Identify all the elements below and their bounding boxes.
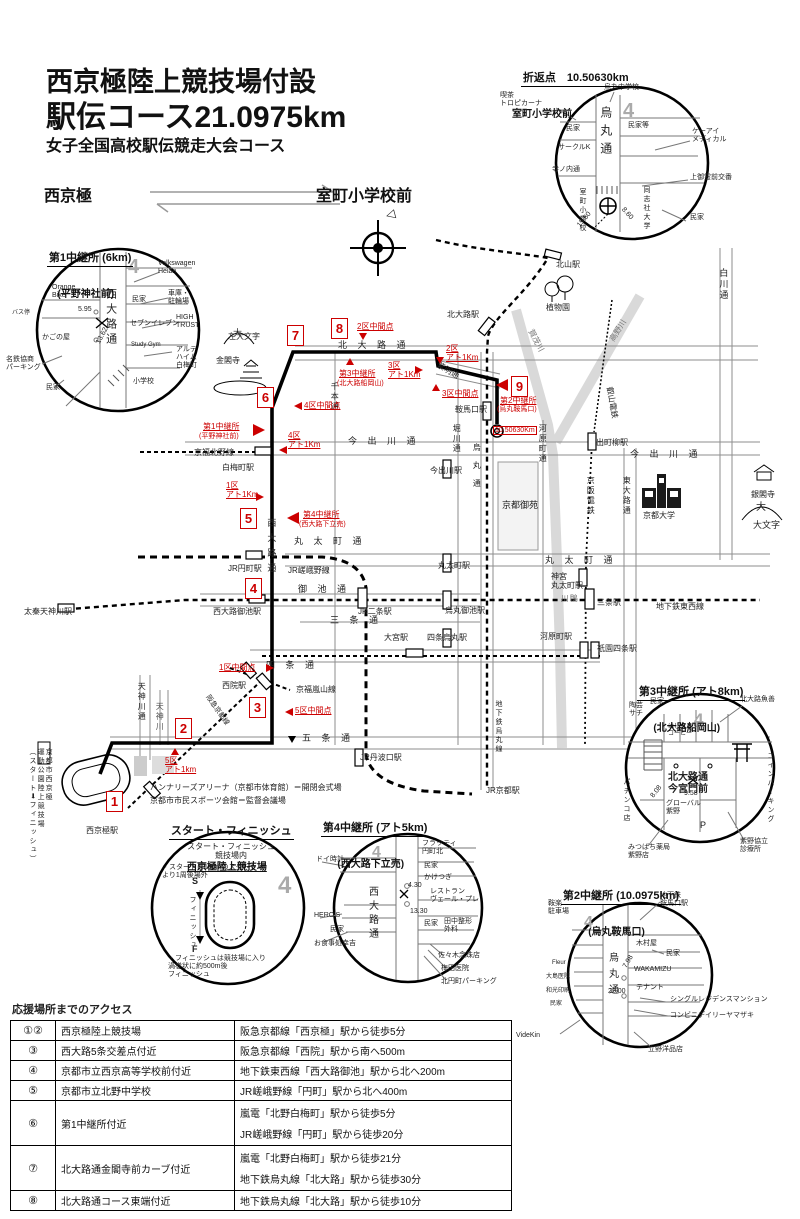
label-leg1-midpoint: 1区中間点: [219, 663, 255, 672]
triangle-down-black-icon: [288, 736, 296, 743]
label-nishioji-dori-inset4: 西大路通: [366, 886, 378, 942]
label-relay2-point: 第2中継所: [500, 396, 536, 405]
label-daily-yamazaki: コンビニデイリーヤマザキ: [670, 1012, 754, 1020]
label-kyoto-university: 京都大学: [643, 511, 675, 520]
label-relay3-point-sub: (北大路船岡山): [337, 380, 384, 388]
row-place: 第1中継所付近: [56, 1101, 235, 1146]
triangle-right-icon: [253, 424, 265, 436]
row-access: 阪急京都線「西院」駅から南へ500m: [235, 1041, 512, 1061]
table-row: ⑧ 北大路通コース東端付近 地下鉄烏丸線「北大路」駅から徒歩10分: [11, 1191, 512, 1211]
sf-f-mark: F: [192, 944, 198, 954]
label-shirakawa-dori: 白川通: [718, 268, 728, 301]
label-umeda-clinic: 梅田医院: [441, 965, 469, 973]
label-leg5-midpoint: 5区中間点: [295, 706, 331, 715]
label-kyoto-station: JR京都駅: [486, 786, 520, 795]
marker-5: 5: [240, 508, 257, 529]
direction-arrows-icon: [150, 185, 340, 212]
relay1-inset-header: 第1中継所 (6km) (平野神社前): [38, 230, 133, 318]
label-stadium-vertical: 京都市西京極 運動公園陸上競技場 （スタート➡フィニッシュ）: [28, 748, 52, 864]
label-jingumarutamachi-station: 神宮 丸太町駅: [551, 572, 583, 590]
label-heros: HERO'S: [314, 912, 340, 920]
triangle-left-icon: [279, 446, 287, 454]
label-kitaoji-station: 北大路駅: [447, 310, 479, 319]
sf-finish-note: ・フィニッシュは競技場に入り 渦巻状に約500m後 フィニッシュ: [168, 955, 266, 979]
table-row: ③ 西大路5条交差点付近 阪急京都線「西院」駅から南へ500m: [11, 1041, 512, 1061]
label-relay1-point: 第1中継所: [203, 422, 239, 431]
label-hakubaicho-station: 白梅町駅: [222, 463, 254, 472]
row-access: 嵐電「北野白梅町」駅から徒歩21分地下鉄烏丸線「北大路」駅から徒歩30分: [235, 1146, 512, 1191]
label-relay4-point-sub: (西大路下立売): [299, 521, 346, 529]
label-gionshijo-station: 祇園四条駅: [597, 644, 637, 653]
label-koban: 上御霊前交番: [690, 174, 732, 182]
label-oike-dori: 御 池 通: [298, 584, 350, 594]
label-relay4-point: 第4中継所: [303, 510, 339, 519]
label-kuramaguchi-station: 鞍馬口駅: [455, 405, 487, 414]
label-ginkakuji: 銀閣寺: [751, 490, 775, 499]
row-num: ⑧: [11, 1191, 56, 1211]
sf-inset-title: スタート・フィニッシュ: [169, 822, 294, 840]
relay4-inset-title: 第4中継所 (アト5km): [321, 819, 430, 837]
label-karasumaoike-station: 烏丸御池駅: [445, 606, 485, 615]
triangle-right-icon: [256, 493, 264, 501]
label-high-trust: HIGH TRUST: [176, 314, 199, 330]
label-kamogawa: 鴨 川: [560, 594, 578, 606]
label-tateno-yohin: 立野洋品店: [648, 1046, 683, 1054]
label-minka-r4b: 民家: [330, 926, 344, 934]
turn-inset-subtitle: 室町小学校前: [512, 105, 631, 120]
label-keai-medical: ケーアイ メディカル: [692, 128, 727, 144]
label-coin-parking: コインパーキング: [766, 752, 774, 824]
row-place: 北大路通コース東端付近: [56, 1191, 235, 1211]
row-num: ⑦: [11, 1146, 56, 1191]
label-imadegawa-dori-east: 今 出 川 通: [630, 449, 702, 459]
label-tenjingawa-dori: 天神川通: [137, 682, 146, 722]
row-num: ①②: [11, 1021, 56, 1041]
label-uzumasa-station: 太秦天神川駅: [24, 607, 72, 616]
triangle-down-icon: [359, 333, 367, 340]
label-tenant: テナント: [636, 984, 664, 992]
label-study-gym: Study Gym: [131, 342, 161, 349]
relay3-inset-title: 第3中継所 (アト8km): [637, 683, 746, 701]
sf-finish-vertical: フィニッシュ: [188, 896, 196, 950]
label-circle-k: サークルK: [558, 144, 590, 152]
label-seven-eleven: セブンイレブン: [130, 320, 179, 328]
label-kyoritsu-clinic: 紫野協立 診療所: [740, 838, 768, 854]
row-access: 嵐電「北野白梅町」駅から徒歩5分JR嵯峨野線「円町」駅から徒歩20分: [235, 1101, 512, 1146]
relay1-inset-title: 第1中継所 (6km): [47, 249, 134, 267]
label-gojo-dori: 五 条 通: [302, 733, 354, 743]
table-row: ⑥ 第1中継所付近 嵐電「北野白梅町」駅から徒歩5分JR嵯峨野線「円町」駅から徒…: [11, 1101, 512, 1146]
marker-7: 7: [287, 325, 304, 346]
label-relay1-point-sub: (平野神社前): [199, 433, 239, 441]
label-bus-stop: バス停: [12, 310, 30, 317]
page-title-line3: 女子全国高校駅伝競走大会コース: [46, 132, 285, 156]
row-access: 阪急京都線「西京極」駅から徒歩5分: [235, 1021, 512, 1041]
direction-left: 西京極: [44, 182, 92, 206]
label-relay3-point: 第3中継所: [339, 369, 375, 378]
label-videkin: VideKin: [516, 1032, 540, 1040]
label-subway-karasuma: 地下鉄烏丸線: [494, 700, 502, 754]
label-kitaenmachi-parking: 北円町パーキング: [441, 978, 497, 986]
label-wako-printing: 和光印刷: [546, 988, 570, 995]
label-marutamachi-station: 丸太町駅: [438, 561, 470, 570]
triangle-left-icon: [287, 512, 299, 524]
label-demachiyanagi-station: 出町柳駅: [596, 438, 628, 447]
sf-inset-subtitle: 西京極陸上競技場: [160, 858, 294, 873]
turn-inset-title: 折返点 10.50630km: [521, 69, 631, 87]
label-keihan-railway: 京阪電鉄: [586, 476, 595, 516]
triangle-up-icon: [171, 748, 179, 755]
label-subway-tozai: 地下鉄東西線: [656, 602, 704, 611]
kyoto-university-icon: [642, 474, 681, 508]
label-parking-p: P: [700, 820, 706, 830]
triangle-up-icon: [346, 358, 354, 365]
marker-1: 1: [106, 791, 123, 812]
triangle-left-icon: [294, 402, 302, 410]
relay2-inset-title: 第2中継所 (10.0975km): [561, 887, 681, 905]
label-imadegawa-dori-west: 今 出 川 通: [348, 436, 420, 446]
label-horikawa-dori: 堀川通: [452, 424, 461, 454]
triangle-left-icon: [496, 379, 508, 391]
row-place: 京都市立北野中学校: [56, 1081, 235, 1101]
label-sanjo-dori: 三 条 通: [330, 615, 382, 625]
row-num: ⑤: [11, 1081, 56, 1101]
label-kinkakuji: 金閣寺: [216, 356, 240, 365]
label-sasaki-nenju: 佐々木念珠店: [438, 952, 480, 960]
label-turn-distance: 10.50630Km: [493, 427, 537, 435]
label-wakamizu: WAKAMIZU: [634, 966, 671, 974]
page-title-line2: 駅伝コース21.0975km: [46, 92, 346, 136]
label-koukichi: お食事処幸吉: [314, 940, 356, 948]
row-access: JR嵯峨野線「円町」駅から北へ400m: [235, 1081, 512, 1101]
row-place: 西大路5条交差点付近: [56, 1041, 235, 1061]
ekiden-course-map: 西京極陸上競技場付設 駅伝コース21.0975km 女子全国高校駅伝競走大会コー…: [0, 0, 800, 1219]
label-dai-glyph: 大: [233, 328, 242, 338]
label-marutamachi-dori-east: 丸 太 町 通: [545, 555, 617, 565]
label-kitayama-station: 北山駅: [556, 260, 580, 269]
label-nishioji-dori: 西大路通: [266, 518, 276, 578]
label-leg4-midpoint: 4区中間点: [304, 401, 340, 410]
label-arena-note: ハンナリーズアリーナ（京都市体育館）＝開閉会式場: [150, 783, 342, 792]
label-leg2-1km: 2区 アト1Km: [446, 344, 478, 362]
label-arte-haim: アルテ ハイム 白梅町: [176, 346, 197, 370]
label-minka-se: 民家: [690, 214, 704, 222]
label-minka-tou: 民家等: [628, 122, 649, 130]
ginkakuji-icon: [754, 465, 774, 480]
label-leg5-1km: 5区 アト1km: [165, 756, 196, 774]
turn-inset-header: 折返点 10.50630km 室町小学校前: [512, 50, 631, 138]
label-leg2-midpoint: 2区中間点: [357, 322, 393, 331]
label-kawaramachi-station: 河原町駅: [540, 632, 572, 641]
label-mitsubachi-pharmacy: みつばち薬局 紫野店: [628, 844, 670, 860]
label-minka-sw: 民家: [46, 384, 60, 392]
label-oshima-clinic: 大島医院: [546, 974, 570, 981]
label-elementary-school: 小学校: [133, 378, 154, 386]
relay2-inset-subtitle: (烏丸鞍馬口): [552, 923, 681, 938]
table-row: ⑦ 北大路通金閣寺前カーブ付近 嵐電「北野白梅町」駅から徒歩21分地下鉄烏丸線「…: [11, 1146, 512, 1191]
relay3-inset-header: 第3中継所 (アト8km) (北大路船岡山): [628, 664, 745, 752]
label-volkswagen: Volkswagen Heian: [158, 260, 195, 276]
label-restaurant-vert: レストラン ヴェール・プレ: [430, 888, 479, 904]
label-gosho: 京都御苑: [502, 500, 538, 510]
label-botanical-garden: 植物園: [546, 303, 570, 312]
label-leg3-midpoint: 3区中間点: [442, 389, 478, 398]
label-width-958: 9.58: [684, 790, 698, 798]
label-saiin-station: 西院駅: [222, 681, 246, 690]
relay4-inset-header: 第4中継所 (アト5km) (西大路下立売): [312, 800, 429, 888]
label-kawaramachi-dori: 河原町通: [538, 424, 547, 464]
table-row: ④ 京都市立西京高等学校前付近 地下鉄東西線「西大路御池」駅から北へ200m: [11, 1061, 512, 1081]
label-sanjo-station: 三条駅: [597, 598, 621, 607]
triangle-right-icon: [266, 664, 274, 672]
relay2-inset-header: 第2中継所 (10.0975km) (烏丸鞍馬口): [552, 868, 681, 956]
subway-tozai-line: [58, 600, 760, 610]
label-minka: 民家: [132, 296, 146, 304]
label-width-1330: 13.30: [410, 908, 428, 916]
label-nishikyogoku-station: 西京極駅: [86, 826, 118, 835]
label-fleur: Fleur: [552, 960, 566, 967]
label-imadegawa-station: 今出川駅: [430, 466, 462, 475]
triangle-up-icon: [432, 384, 440, 391]
label-higashioji-dori: 東大路通: [622, 476, 631, 516]
triangle-left-icon: [285, 708, 293, 716]
row-num: ④: [11, 1061, 56, 1081]
label-leg4-1km: 4区 アト1Km: [288, 431, 320, 449]
row-num: ③: [11, 1041, 56, 1061]
label-single-residence: シングルレジデンスマンション: [670, 996, 768, 1004]
label-tenjingawa: 天神川: [155, 702, 164, 732]
marker-3: 3: [249, 697, 266, 718]
marker-4: 4: [245, 578, 262, 599]
access-table: ①② 西京極陸上競技場 阪急京都線「西京極」駅から徒歩5分 ③ 西大路5条交差点…: [10, 1020, 512, 1211]
triangle-right-icon: [415, 366, 423, 374]
marker-6: 6: [257, 387, 274, 408]
sf-inset-header: スタート・フィニッシュ 西京極陸上競技場: [160, 803, 294, 891]
label-kagonoya: かごの屋: [42, 334, 70, 342]
crosshair-icon: [350, 220, 406, 276]
label-shijokarasuma-station: 四条烏丸駅: [427, 633, 467, 642]
label-teranouchi-dori: 寺ノ内通: [552, 166, 580, 174]
row-place: 京都市立西京高等学校前付近: [56, 1061, 235, 1081]
marker-9: 9: [511, 376, 528, 397]
row-access: 地下鉄烏丸線「北大路」駅から徒歩10分: [235, 1191, 512, 1211]
label-omiya-station: 大宮駅: [384, 633, 408, 642]
table-row: ⑤ 京都市立北野中学校 JR嵯峨野線「円町」駅から北へ400m: [11, 1081, 512, 1101]
label-width-2200: 22.00: [608, 988, 626, 996]
label-karasuma-dori: 烏丸通: [472, 443, 481, 497]
label-marutamachi-dori-west: 丸 太 町 通: [294, 536, 366, 546]
marker-2: 2: [175, 718, 192, 739]
label-keifuku-kitano-line: 京福北野線: [194, 448, 234, 457]
label-global-murasakino: グローバル 紫野: [666, 800, 701, 816]
relay4-inset-subtitle: (西大路下立売): [312, 855, 429, 870]
botanical-garden-icon: [545, 276, 573, 302]
direction-right: 室町小学校前: [316, 182, 412, 206]
relay1-inset-subtitle: (平野神社前): [38, 285, 133, 300]
label-dai-glyph-east: 大: [756, 502, 766, 514]
label-keifuku-arashiyama-line: 京福嵐山線: [296, 685, 336, 694]
label-minka-r4c: 民家: [424, 920, 438, 928]
triangle-down-icon: [436, 357, 444, 364]
row-place: 北大路通金閣寺前カーブ付近: [56, 1146, 235, 1191]
row-place: 西京極陸上競技場: [56, 1021, 235, 1041]
marker-8: 8: [331, 318, 348, 339]
label-minka-r2b: 民家: [550, 1001, 562, 1008]
relay3-inset-subtitle: (北大路船岡山): [628, 719, 745, 734]
label-jr-sagano-line: JR嵯峨野線: [288, 566, 330, 575]
label-tanaka-seikei: 田中整形 外科: [444, 918, 472, 934]
label-nishiojioike-station: 西大路御池駅: [213, 607, 261, 616]
table-row: ①② 西京極陸上競技場 阪急京都線「西京極」駅から徒歩5分: [11, 1021, 512, 1041]
label-kitaoji-dori: 北 大 路 通: [338, 340, 410, 350]
row-access: 地下鉄東西線「西大路御池」駅から北へ200m: [235, 1061, 512, 1081]
label-garage: 車庫・ 駐輪場: [168, 290, 189, 306]
label-enmachi-station: JR円町駅: [228, 564, 262, 573]
label-doshisha-univ: 同志社大学: [642, 186, 650, 231]
access-table-title: 応援場所までのアクセス: [12, 1004, 132, 1017]
label-tanbaguchi-station: JR丹波口駅: [360, 753, 402, 762]
label-relay2-point-sub: (烏丸鞍馬口): [497, 406, 537, 414]
label-meitetsu-parking: 名鉄協商 パーキング: [6, 356, 41, 372]
row-num: ⑥: [11, 1101, 56, 1146]
label-leg1-1km: 1区 アト1Km: [226, 481, 258, 499]
label-daimonji: 大文字: [753, 520, 780, 530]
label-pachinko: パチンコ店: [622, 778, 630, 823]
